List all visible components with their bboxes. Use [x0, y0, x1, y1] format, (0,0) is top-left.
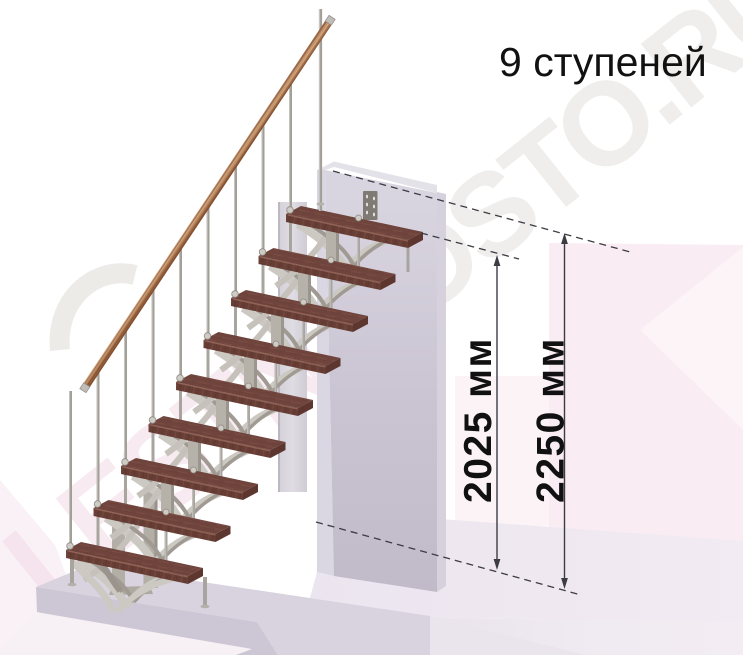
svg-text:2250 мм: 2250 мм: [530, 337, 573, 503]
svg-text:2025 мм: 2025 мм: [457, 337, 500, 503]
svg-text:9 ступеней: 9 ступеней: [499, 39, 707, 85]
